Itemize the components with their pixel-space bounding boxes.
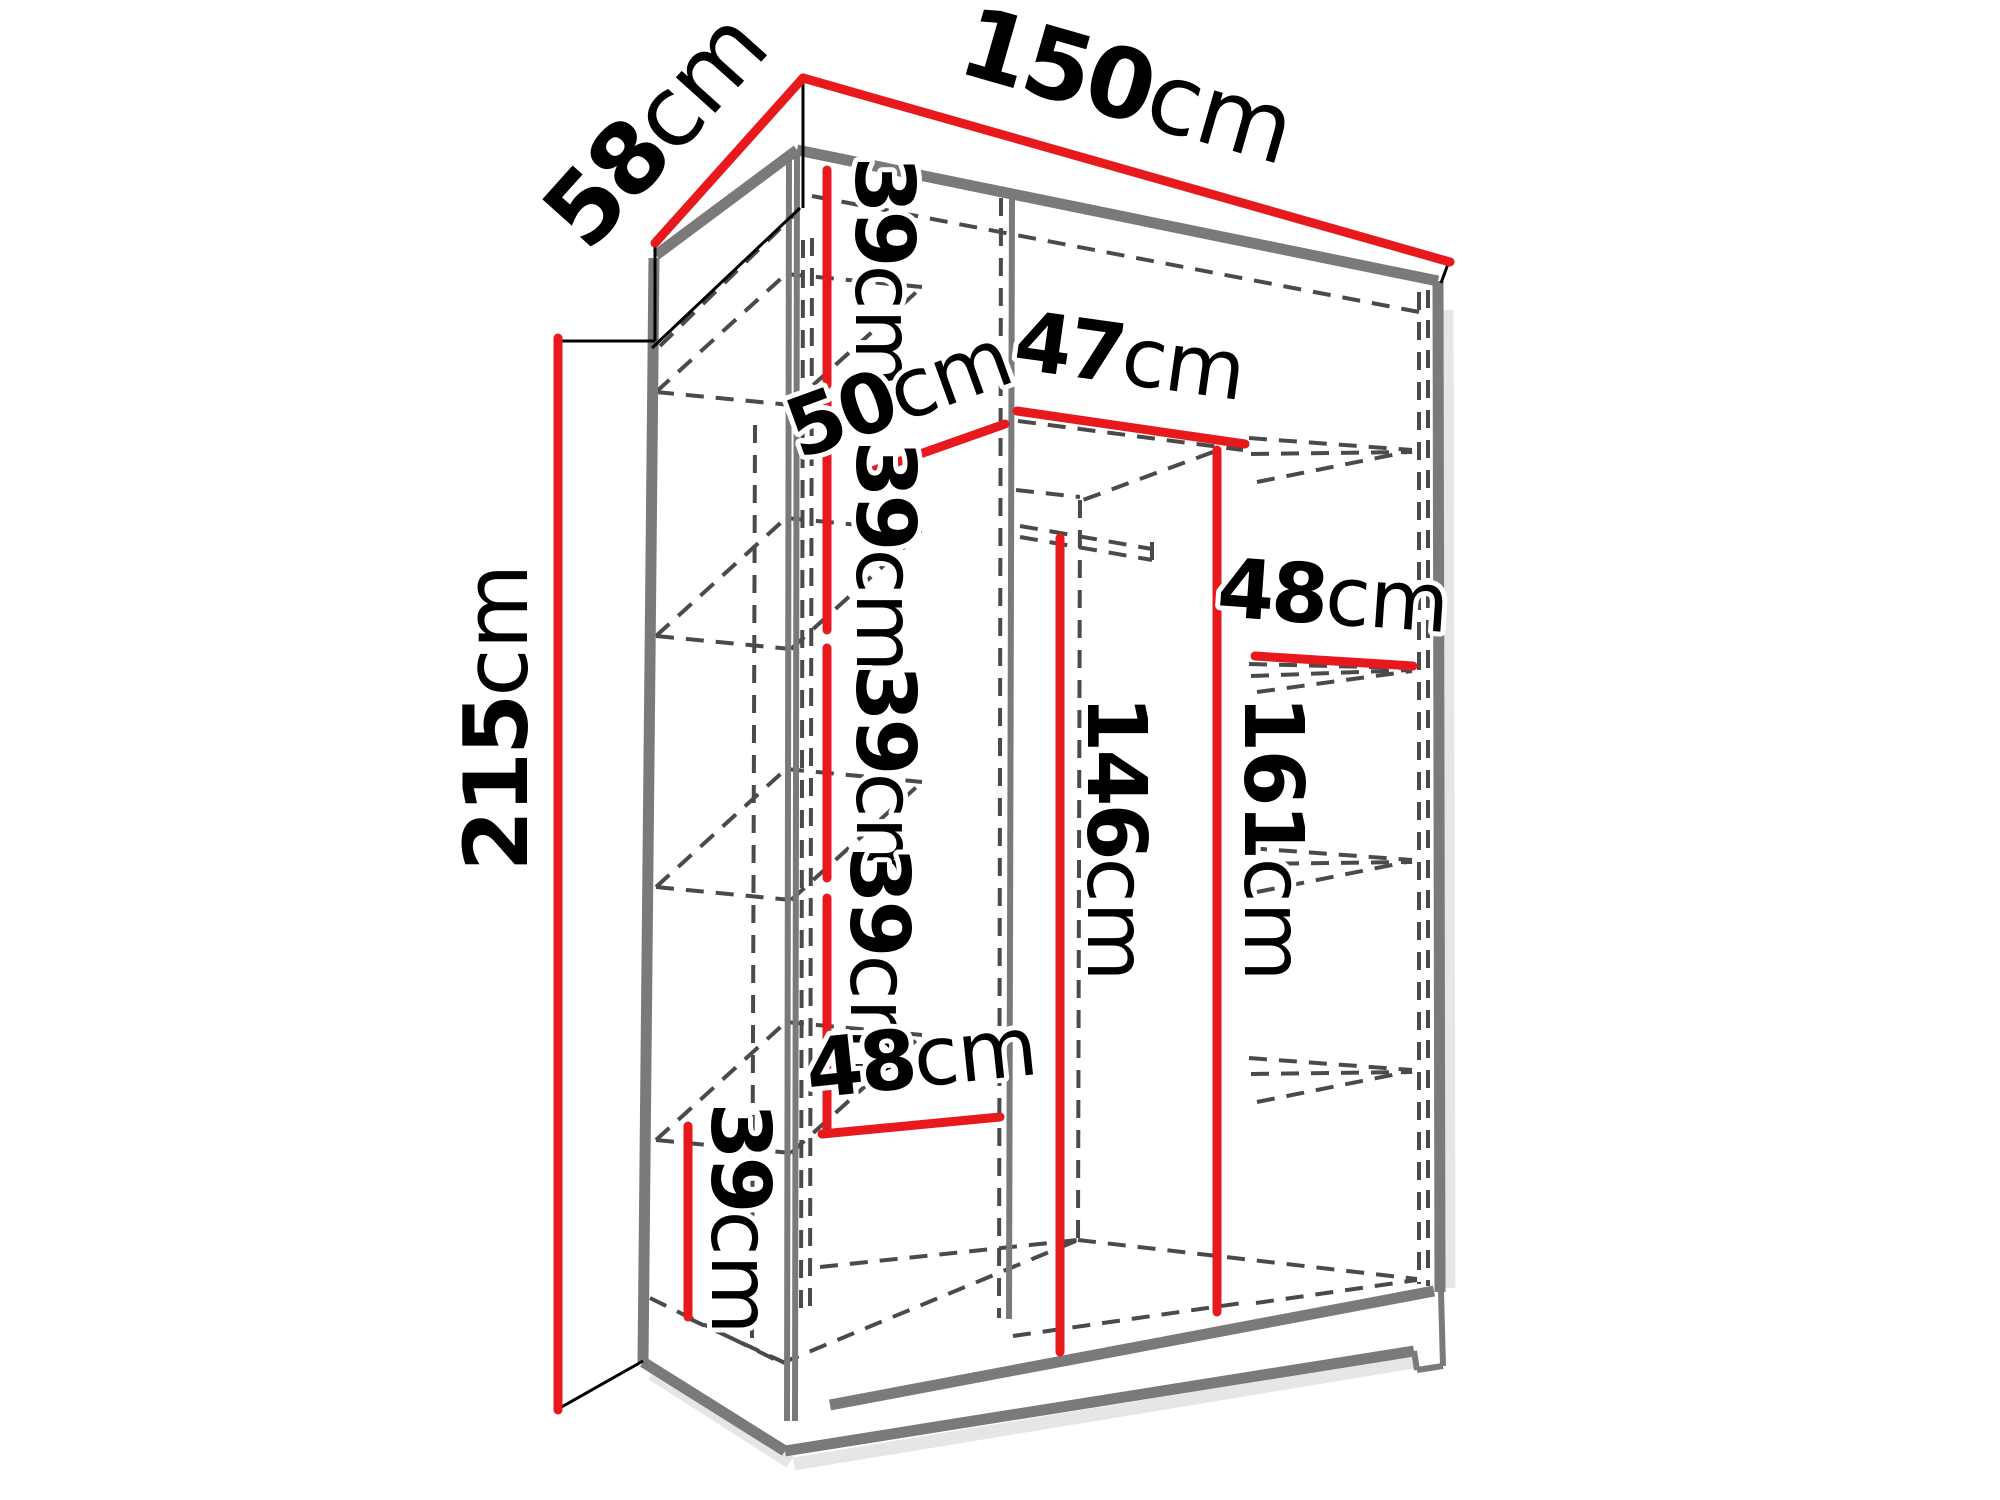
wardrobe-dimension-diagram: 150cm58cm215cm39cm50cm47cm39cm48cm39cm14… (0, 0, 2000, 1500)
hidden-edge-dashed (1020, 526, 1152, 549)
dim-label-mid-width-47: 47cm (1009, 294, 1251, 420)
cast-shadow-line (1447, 310, 1449, 1288)
divider-edge (795, 153, 797, 1421)
carcass-edge (1438, 281, 1440, 1292)
carcass-edge (643, 1362, 785, 1451)
hidden-edge-dashed (1016, 490, 1080, 497)
dim-label-side-height-215: 215cm (445, 565, 548, 872)
hidden-edge-dashed (1257, 451, 1412, 482)
hidden-edge-dashed (1078, 1240, 1417, 1279)
hidden-edge-dashed (656, 636, 791, 649)
hidden-edge-dashed (1249, 1058, 1412, 1070)
hidden-edge-dashed (1251, 452, 1412, 454)
hidden-edge-dashed (1257, 1071, 1412, 1102)
carcass-edge (830, 1291, 1434, 1405)
divider-edge (1417, 1366, 1443, 1370)
dim-line-right-width-48 (1255, 656, 1413, 666)
dim-label-right-width-48: 48cm (1214, 541, 1451, 652)
dimension-extension-tick (1441, 264, 1448, 283)
hidden-edge-dashed (656, 769, 786, 887)
dim-label-hang-height-146: 146cm (1068, 695, 1163, 980)
hidden-edge-dashed (656, 518, 786, 636)
dimension-extension-tick (558, 1361, 643, 1409)
hidden-edge-dashed (656, 274, 786, 392)
hidden-edge-dashed (1249, 438, 1412, 450)
diagram-canvas: 150cm58cm215cm39cm50cm47cm39cm48cm39cm14… (0, 0, 2000, 1500)
dim-label-hang-height-161: 161cm (1225, 695, 1320, 980)
hidden-edge-dashed (1083, 452, 1213, 500)
dim-line-bottom-width-48 (822, 1117, 1000, 1134)
dim-label-top-width-150: 150cm (949, 0, 1306, 187)
dim-label-bottom-gap-39: 39cm (692, 1102, 787, 1333)
carcass-edge (643, 258, 654, 1362)
dimension-labels-layer: 150cm58cm215cm39cm50cm47cm39cm48cm39cm14… (445, 0, 1451, 1334)
hidden-edge-dashed (656, 887, 791, 900)
hidden-edge-dashed (656, 392, 791, 405)
hidden-edge-dashed (782, 1240, 1078, 1363)
hidden-edge-dashed (1257, 671, 1412, 692)
hidden-edge-dashed (820, 1240, 1078, 1267)
dim-label-left-gap-39-b: 39cm (837, 440, 932, 671)
divider-edge (1441, 1292, 1443, 1366)
hidden-edge-dashed (1251, 1072, 1412, 1074)
cast-shadow-line (794, 1362, 1414, 1464)
hidden-edge-dashed (1020, 537, 1152, 560)
cast-shadow-line (652, 1374, 790, 1462)
